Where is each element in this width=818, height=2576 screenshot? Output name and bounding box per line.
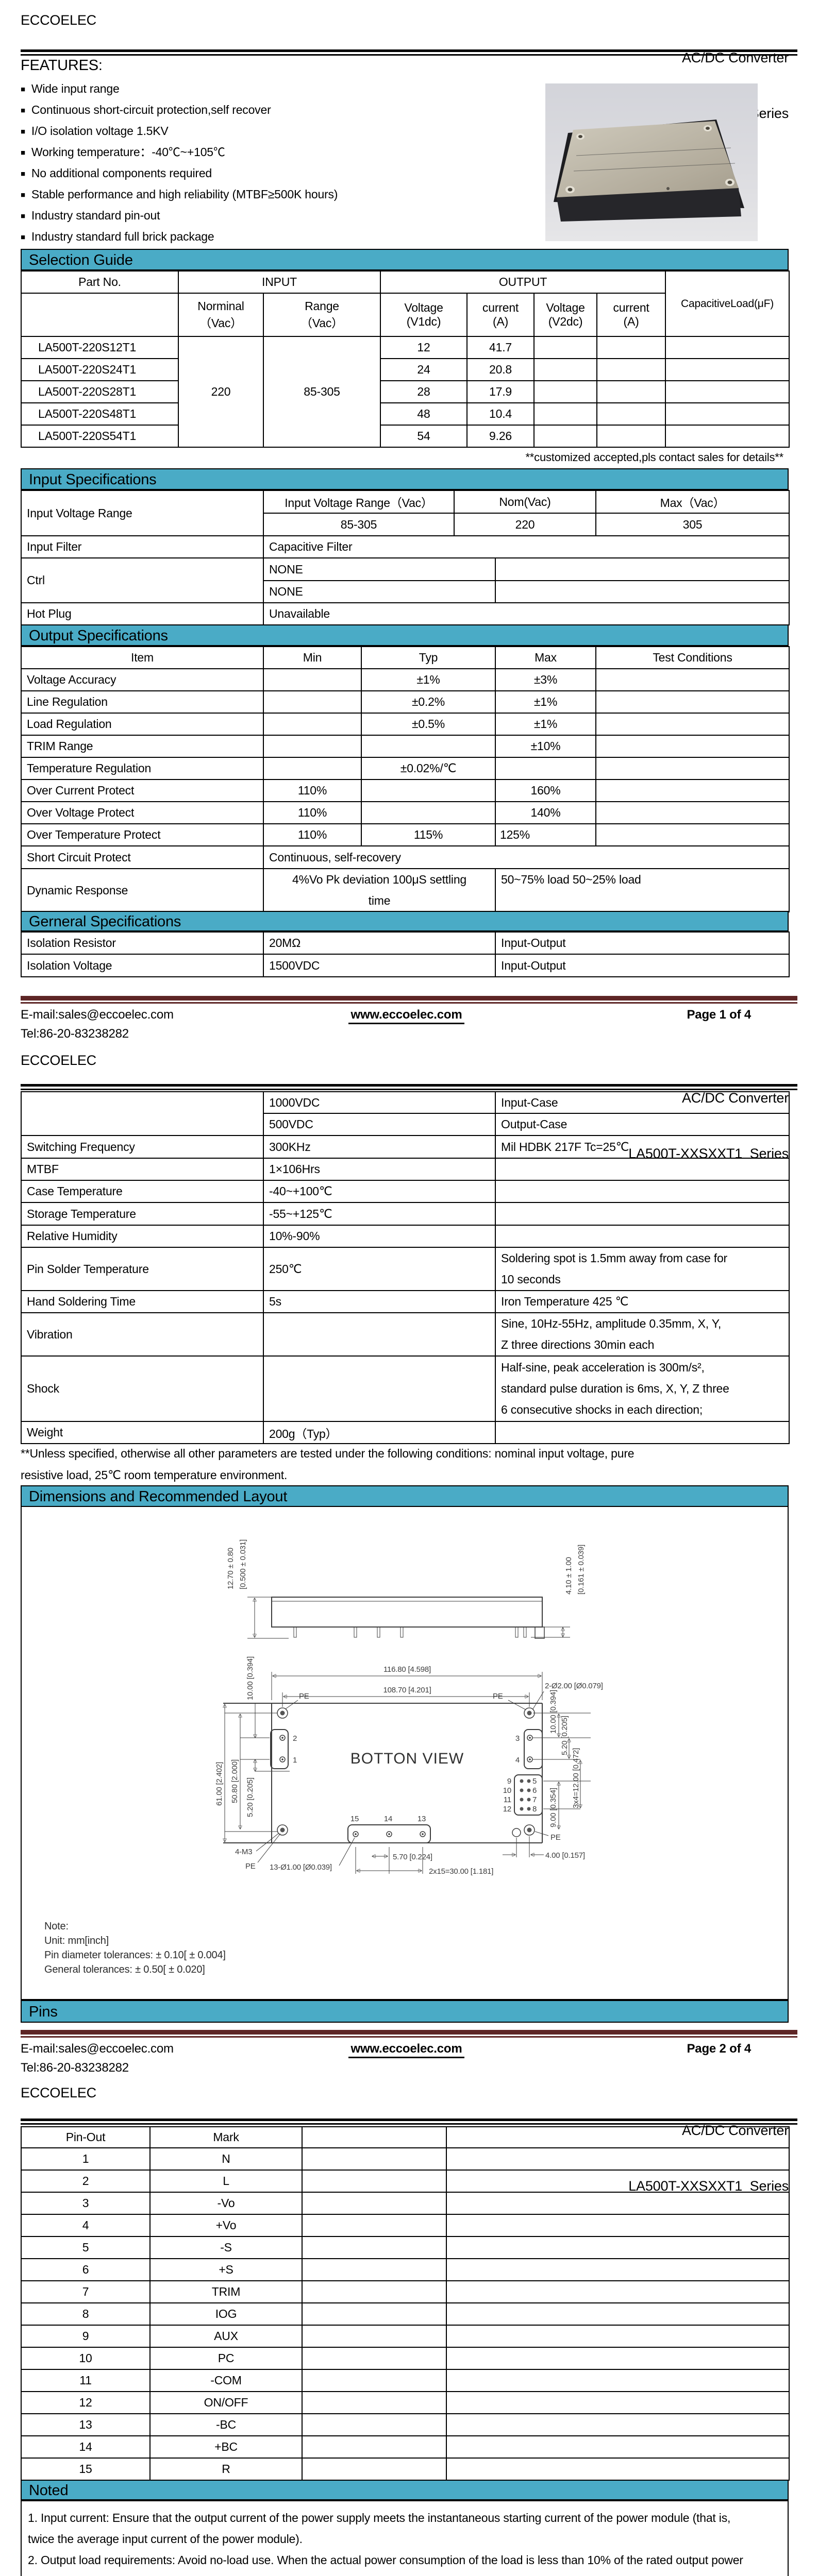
footer-rule-thick [21,2030,797,2035]
feature-item: ■Industry standard full brick package [21,226,526,247]
footer-rule-thick [21,996,797,1001]
header-rule [21,2119,797,2125]
product-photo [545,83,758,241]
pinout-table: Pin-Out Mark 1N 2L 3-Vo 4+Vo 5-S 6+S 7TR… [21,2126,790,2481]
col-current1: current(A) [467,293,534,336]
table-row: Hand Soldering Time 5s Iron Temperature … [21,1291,789,1313]
col-v2dc: Voltage(V2dc) [534,293,597,336]
spec-label: Ctrl [21,558,263,603]
svg-text:4: 4 [515,1756,520,1765]
page2-specs-table: 1000VDC Input-Case 500VDC Output-Case Sw… [21,1091,790,1444]
table-row: 3-Vo [21,2192,789,2214]
feature-item: ■Stable performance and high reliability… [21,184,526,205]
table-row: 7TRIM [21,2281,789,2303]
table-row: Line Regulation ±0.2% ±1% [21,691,789,713]
svg-text:5.70 [0.224]: 5.70 [0.224] [393,1853,432,1861]
header-rule [21,49,797,56]
table-row: Over Current Protect 110% 160% [21,779,789,802]
feature-item: ■Wide input range [21,78,526,99]
table-row: 9AUX [21,2325,789,2347]
website-link[interactable]: www.eccoelec.com [348,1008,464,1024]
footer-tel: Tel:86-20-83238282 [21,2061,797,2075]
dim-pin-label: [0.161 ± 0.039] [577,1545,586,1595]
square-bullet-icon: ■ [21,106,25,115]
website-link[interactable]: www.eccoelec.com [348,2042,464,2058]
spec-label: Input Voltage Range [21,490,263,536]
section-output-specs: Output Specifications [21,624,789,646]
feature-item: ■I/O isolation voltage 1.5KV [21,121,526,142]
square-bullet-icon: ■ [21,170,25,178]
table-row: Over Temperature Protect 110% 115% 125% [21,824,789,846]
table-row: 13-BC [21,2414,789,2436]
features-title: FEATURES: [21,57,103,74]
pe-label: PE [550,1833,561,1842]
section-input-specs: Input Specifications [21,468,789,490]
drawing-notes: Note: Unit: mm[inch] Pin diameter tolera… [44,1919,226,1977]
col-pinout: Pin-Out [21,2127,150,2148]
footer-page-number: Page 1 of 4 [535,1008,797,1022]
input-specs-table-b: Ctrl NONE NONE Hot Plug Unavailable [21,557,790,625]
col-norminal: Norminal（Vac） [178,293,263,336]
features-list: ■Wide input range ■Continuous short-circ… [21,78,526,247]
table-row: LA500T-220S28T1 28 17.9 [21,381,789,403]
svg-text:9.00 [0.354]: 9.00 [0.354] [549,1788,558,1827]
svg-text:10.00 [0.394]: 10.00 [0.394] [246,1656,255,1700]
pe-label: PE [299,1692,309,1701]
table-row: Dynamic Response 4%Vo Pk deviation 100μS… [21,869,789,912]
footer-website: www.eccoelec.com [278,2042,535,2056]
section-selection-guide: Selection Guide [21,249,789,270]
customized-note: **customized accepted,pls contact sales … [21,447,783,468]
table-row: LA500T-220S48T1 48 10.4 [21,403,789,425]
page2-footer: E-mail:sales@eccoelec.com www.eccoelec.c… [21,2030,797,2075]
square-bullet-icon: ■ [21,212,25,221]
svg-text:50.80 [2.000]: 50.80 [2.000] [230,1759,239,1803]
table-row: Switching Frequency 300KHz Mil HDBK 217F… [21,1136,789,1158]
table-row: 11-COM [21,2369,789,2392]
col-range: Range（Vac） [263,293,380,336]
svg-text:4.00 [0.157]: 4.00 [0.157] [545,1851,585,1860]
table-row: Weight 200g（Typ） [21,1421,789,1444]
table-row: 4+Vo [21,2214,789,2236]
svg-text:11: 11 [504,1795,511,1804]
table-row: MTBF 1×106Hrs [21,1158,789,1180]
table-row: 12ON/OFF [21,2392,789,2414]
col-current2: current(A) [597,293,665,336]
svg-text:13: 13 [418,1815,426,1823]
table-row: Voltage Accuracy ±1% ±3% [21,669,789,691]
table-row: 1000VDC Input-Case [21,1092,789,1113]
table-row: LA500T-220S24T1 24 20.8 [21,359,789,381]
table-row: Shock Half-sine, peak acceleration is 30… [21,1356,789,1421]
feature-item: ■No additional components required [21,163,526,184]
module-photo-art [545,83,758,241]
feature-item: ■Industry standard pin-out [21,205,526,226]
footer-email: E-mail:sales@eccoelec.com [21,1008,278,1022]
section-dimensions: Dimensions and Recommended Layout [21,1485,789,1507]
table-row: 5-S [21,2236,789,2259]
table-row: 15R [21,2458,789,2480]
col-mark: Mark [150,2127,302,2148]
section-noted: Noted [21,2480,789,2500]
header-rule [21,1084,797,1090]
table-row: Short Circuit Protect Continuous, self-r… [21,846,789,869]
test-conditions-note: **Unless specified, otherwise all other … [21,1443,794,1486]
svg-text:13-Ø1.00 [Ø0.039]: 13-Ø1.00 [Ø0.039] [270,1863,332,1872]
square-bullet-icon: ■ [21,233,25,242]
dim-height-label: 12.70 ± 0.80 [226,1548,235,1589]
svg-text:2: 2 [293,1734,297,1743]
svg-text:3x4=12.00 [0.472]: 3x4=12.00 [0.472] [572,1748,580,1808]
table-row: Temperature Regulation ±0.02%/℃ [21,757,789,779]
col-capload: CapacitiveLoad(μF) [665,271,789,336]
general-specs-table: Isolation Resistor 20MΩ Input-Output Iso… [21,931,790,977]
bottom-view-label: BOTTON VIEW [350,1750,464,1767]
page1-footer: E-mail:sales@eccoelec.com www.eccoelec.c… [21,996,797,1041]
svg-text:14: 14 [384,1815,392,1823]
svg-text:5.20 [0.205]: 5.20 [0.205] [560,1716,569,1755]
svg-text:108.70 [4.201]: 108.70 [4.201] [383,1686,431,1694]
svg-text:1: 1 [293,1756,297,1765]
svg-text:4-M3: 4-M3 [235,1848,252,1856]
noted-box: 1. Input current: Ensure that the output… [21,2500,789,2576]
svg-text:9: 9 [507,1777,511,1786]
col-input: INPUT [178,271,380,293]
output-specs-table: Item Min Typ Max Test Conditions Voltage… [21,646,790,912]
svg-text:5: 5 [532,1777,537,1786]
square-bullet-icon: ■ [21,127,25,136]
footer-email: E-mail:sales@eccoelec.com [21,2042,278,2056]
table-row: 1N [21,2148,789,2170]
dimensions-box: 12.70 ± 0.80 [0.500 ± 0.031] 4.10 ± 1.00… [21,1507,789,2000]
svg-text:7: 7 [532,1795,537,1804]
feature-item: ■Continuous short-circuit protection,sel… [21,99,526,121]
square-bullet-icon: ■ [21,148,25,157]
square-bullet-icon: ■ [21,85,25,94]
dim-height-label: [0.500 ± 0.031] [239,1539,247,1589]
table-row: 14+BC [21,2436,789,2458]
table-row: Vibration Sine, 10Hz-55Hz, amplitude 0.3… [21,1313,789,1356]
table-row: Relative Humidity 10%-90% [21,1225,789,1247]
table-row: Isolation Voltage 1500VDC Input-Output [21,954,789,977]
footer-page-number: Page 2 of 4 [535,2042,797,2056]
input-specs-table-a: Input Voltage Range Input Voltage Range（… [21,490,790,558]
table-row: LA500T-220S12T1 220 85-305 12 41.7 [21,336,789,359]
section-general-specs: Gerneral Specifications [21,911,789,931]
table-row: 2L [21,2170,789,2192]
svg-text:8: 8 [532,1805,537,1814]
selection-guide-table: Part No. INPUT OUTPUT CapacitiveLoad(μF)… [21,270,790,448]
svg-text:61.00 [2.402]: 61.00 [2.402] [215,1762,224,1806]
col-v1dc: Voltage(V1dc) [380,293,467,336]
table-row: 10PC [21,2347,789,2369]
spec-label: Input Filter [21,536,263,558]
table-row: Isolation Resistor 20MΩ Input-Output [21,932,789,954]
svg-text:12: 12 [503,1805,511,1814]
spec-label: Hot Plug [21,603,263,625]
feature-item: ■Working temperature：-40℃~+105℃ [21,142,526,163]
table-row: Over Voltage Protect 110% 140% [21,802,789,824]
table-row: Pin Solder Temperature 250℃ Soldering sp… [21,1247,789,1291]
svg-text:15: 15 [350,1815,359,1823]
svg-text:116.80 [4.598]: 116.80 [4.598] [383,1665,431,1674]
table-row: 6+S [21,2259,789,2281]
table-row: Load Regulation ±0.5% ±1% [21,713,789,735]
svg-text:3: 3 [515,1734,520,1743]
svg-text:2-Ø2.00 [Ø0.079]: 2-Ø2.00 [Ø0.079] [545,1682,603,1690]
dim-pin-label: 4.10 ± 1.00 [564,1557,573,1595]
dimension-drawing: 12.70 ± 0.80 [0.500 ± 0.031] 4.10 ± 1.00… [206,1517,619,1909]
svg-text:6: 6 [532,1786,537,1795]
svg-text:2x15=30.00 [1.181]: 2x15=30.00 [1.181] [429,1867,493,1876]
table-row: Storage Temperature -55~+125℃ [21,1202,789,1225]
table-row: 8IOG [21,2303,789,2325]
square-bullet-icon: ■ [21,191,25,199]
pe-label: PE [245,1862,256,1871]
table-row: TRIM Range ±10% [21,735,789,757]
footer-website: www.eccoelec.com [278,1008,535,1022]
table-row: Case Temperature -40~+100℃ [21,1180,789,1202]
svg-text:5.20 [0.205]: 5.20 [0.205] [246,1777,255,1817]
input-range-value: 85-305 [263,336,380,447]
footer-tel: Tel:86-20-83238282 [21,1027,797,1041]
svg-text:10: 10 [503,1786,511,1795]
pe-label: PE [493,1692,503,1701]
section-pins: Pins [21,2000,789,2023]
svg-text:10.00 [0.394]: 10.00 [0.394] [549,1690,558,1734]
datasheet-page: ECCOELEC AC/DC Converter LA500T-XXSXXT1 … [0,0,818,2576]
col-part-no: Part No. [21,271,178,293]
table-row: LA500T-220S54T1 54 9.26 [21,425,789,447]
input-norminal-value: 220 [178,336,263,447]
footer-rule-thin [21,1002,797,1004]
footer-rule-thin [21,2036,797,2038]
col-output: OUTPUT [380,271,665,293]
